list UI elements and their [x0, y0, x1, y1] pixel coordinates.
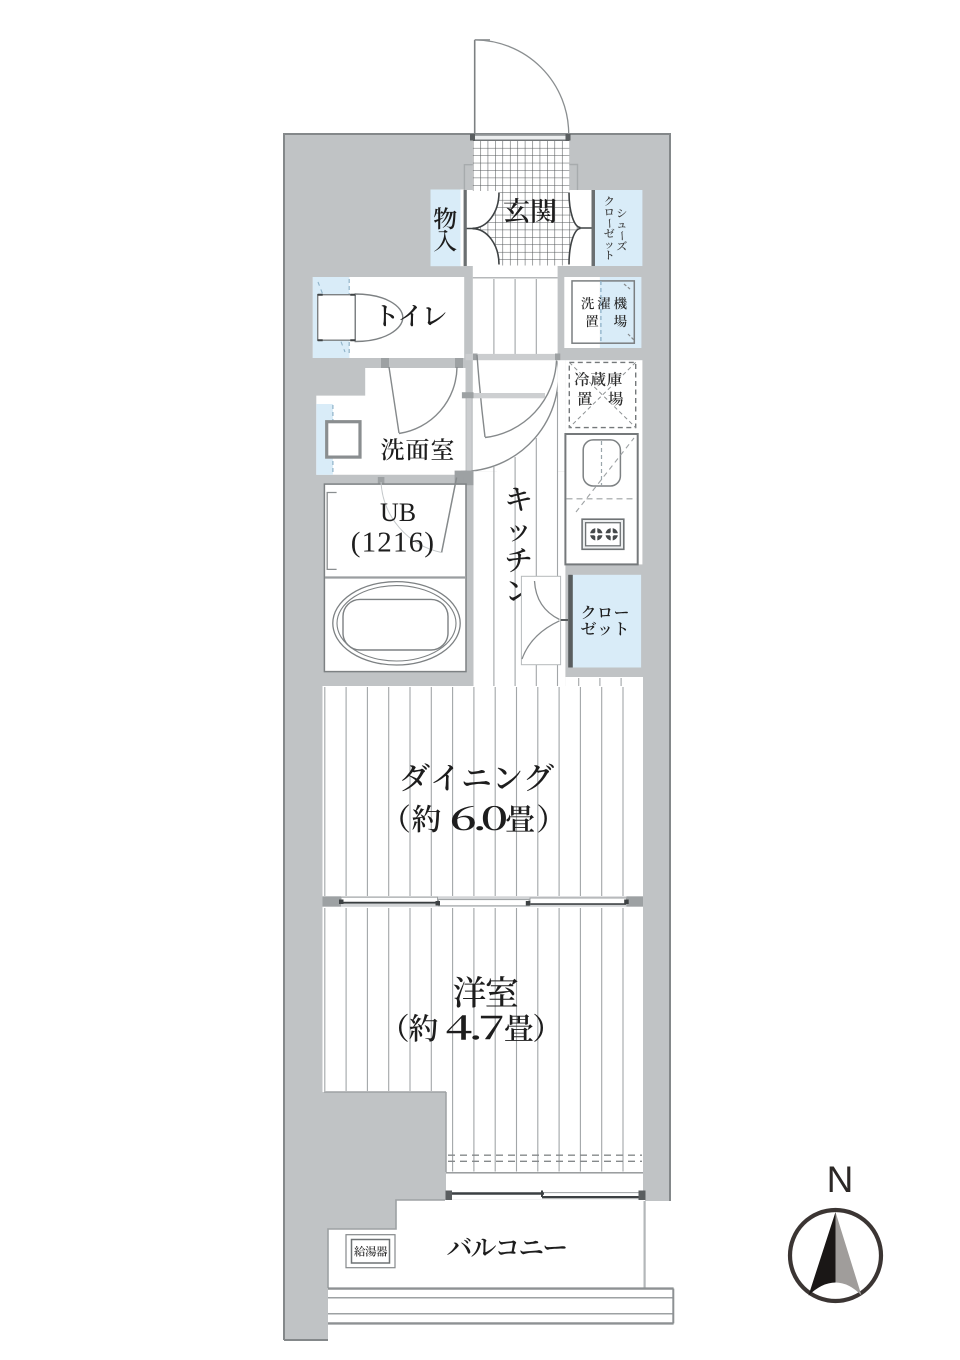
svg-text:(1216): (1216) [351, 527, 436, 559]
svg-text:N: N [827, 1159, 854, 1200]
svg-text:UB: UB [380, 498, 416, 527]
